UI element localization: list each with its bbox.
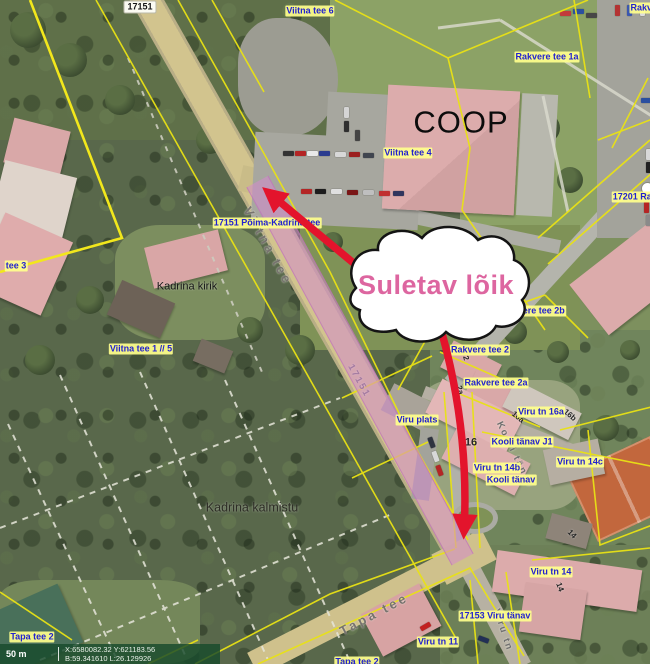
coordinates-bl: B:59.341610 L:26.129926 [65, 654, 151, 663]
tree [10, 12, 46, 48]
car [295, 151, 306, 156]
car [347, 190, 358, 195]
road-shield-icon [641, 182, 650, 195]
car [335, 152, 346, 157]
coordinates-xy: X:6580082.32 Y:621183.56 [65, 645, 155, 654]
car [344, 107, 349, 118]
car [307, 151, 318, 156]
coordinates-readout: X:6580082.32 Y:621183.56 B:59.341610 L:2… [65, 645, 155, 663]
car [331, 189, 342, 194]
car [379, 191, 390, 196]
tree [285, 335, 315, 365]
car [646, 215, 650, 226]
car [393, 191, 404, 196]
car [349, 152, 360, 157]
car [573, 9, 584, 14]
car [646, 162, 650, 173]
closure-callout-label: Suletav lõik [352, 270, 520, 301]
car [615, 5, 620, 16]
tree [323, 232, 343, 252]
tree [53, 43, 87, 77]
car [363, 190, 374, 195]
tree [76, 286, 104, 314]
tree [593, 415, 619, 441]
car [640, 5, 645, 16]
building-viru-14-wing [519, 582, 587, 640]
car [641, 98, 650, 103]
walkway-coop-east [516, 93, 558, 217]
car [586, 13, 597, 18]
tree [419, 239, 445, 265]
tree [620, 340, 640, 360]
tree [547, 341, 569, 363]
scale-label: 50 m [6, 649, 52, 659]
tree [105, 85, 135, 115]
car [363, 153, 374, 158]
scale-tick [58, 647, 59, 661]
car [283, 151, 294, 156]
map-canvas[interactable]: Viitna tee17151Kooli tänavTapa teeViru t… [0, 0, 650, 664]
tree [237, 317, 263, 343]
car [627, 5, 632, 16]
car [319, 151, 330, 156]
parking-east-edge [597, 0, 650, 238]
car [355, 130, 360, 141]
terrain-gravel-patch [238, 18, 338, 136]
statusbar: 50 m X:6580082.32 Y:621183.56 B:59.34161… [0, 644, 220, 664]
car [646, 149, 650, 160]
car [301, 189, 312, 194]
tree [557, 167, 583, 193]
car [315, 189, 326, 194]
car [344, 121, 349, 132]
car [560, 11, 571, 16]
car [644, 202, 649, 213]
tree [25, 345, 55, 375]
